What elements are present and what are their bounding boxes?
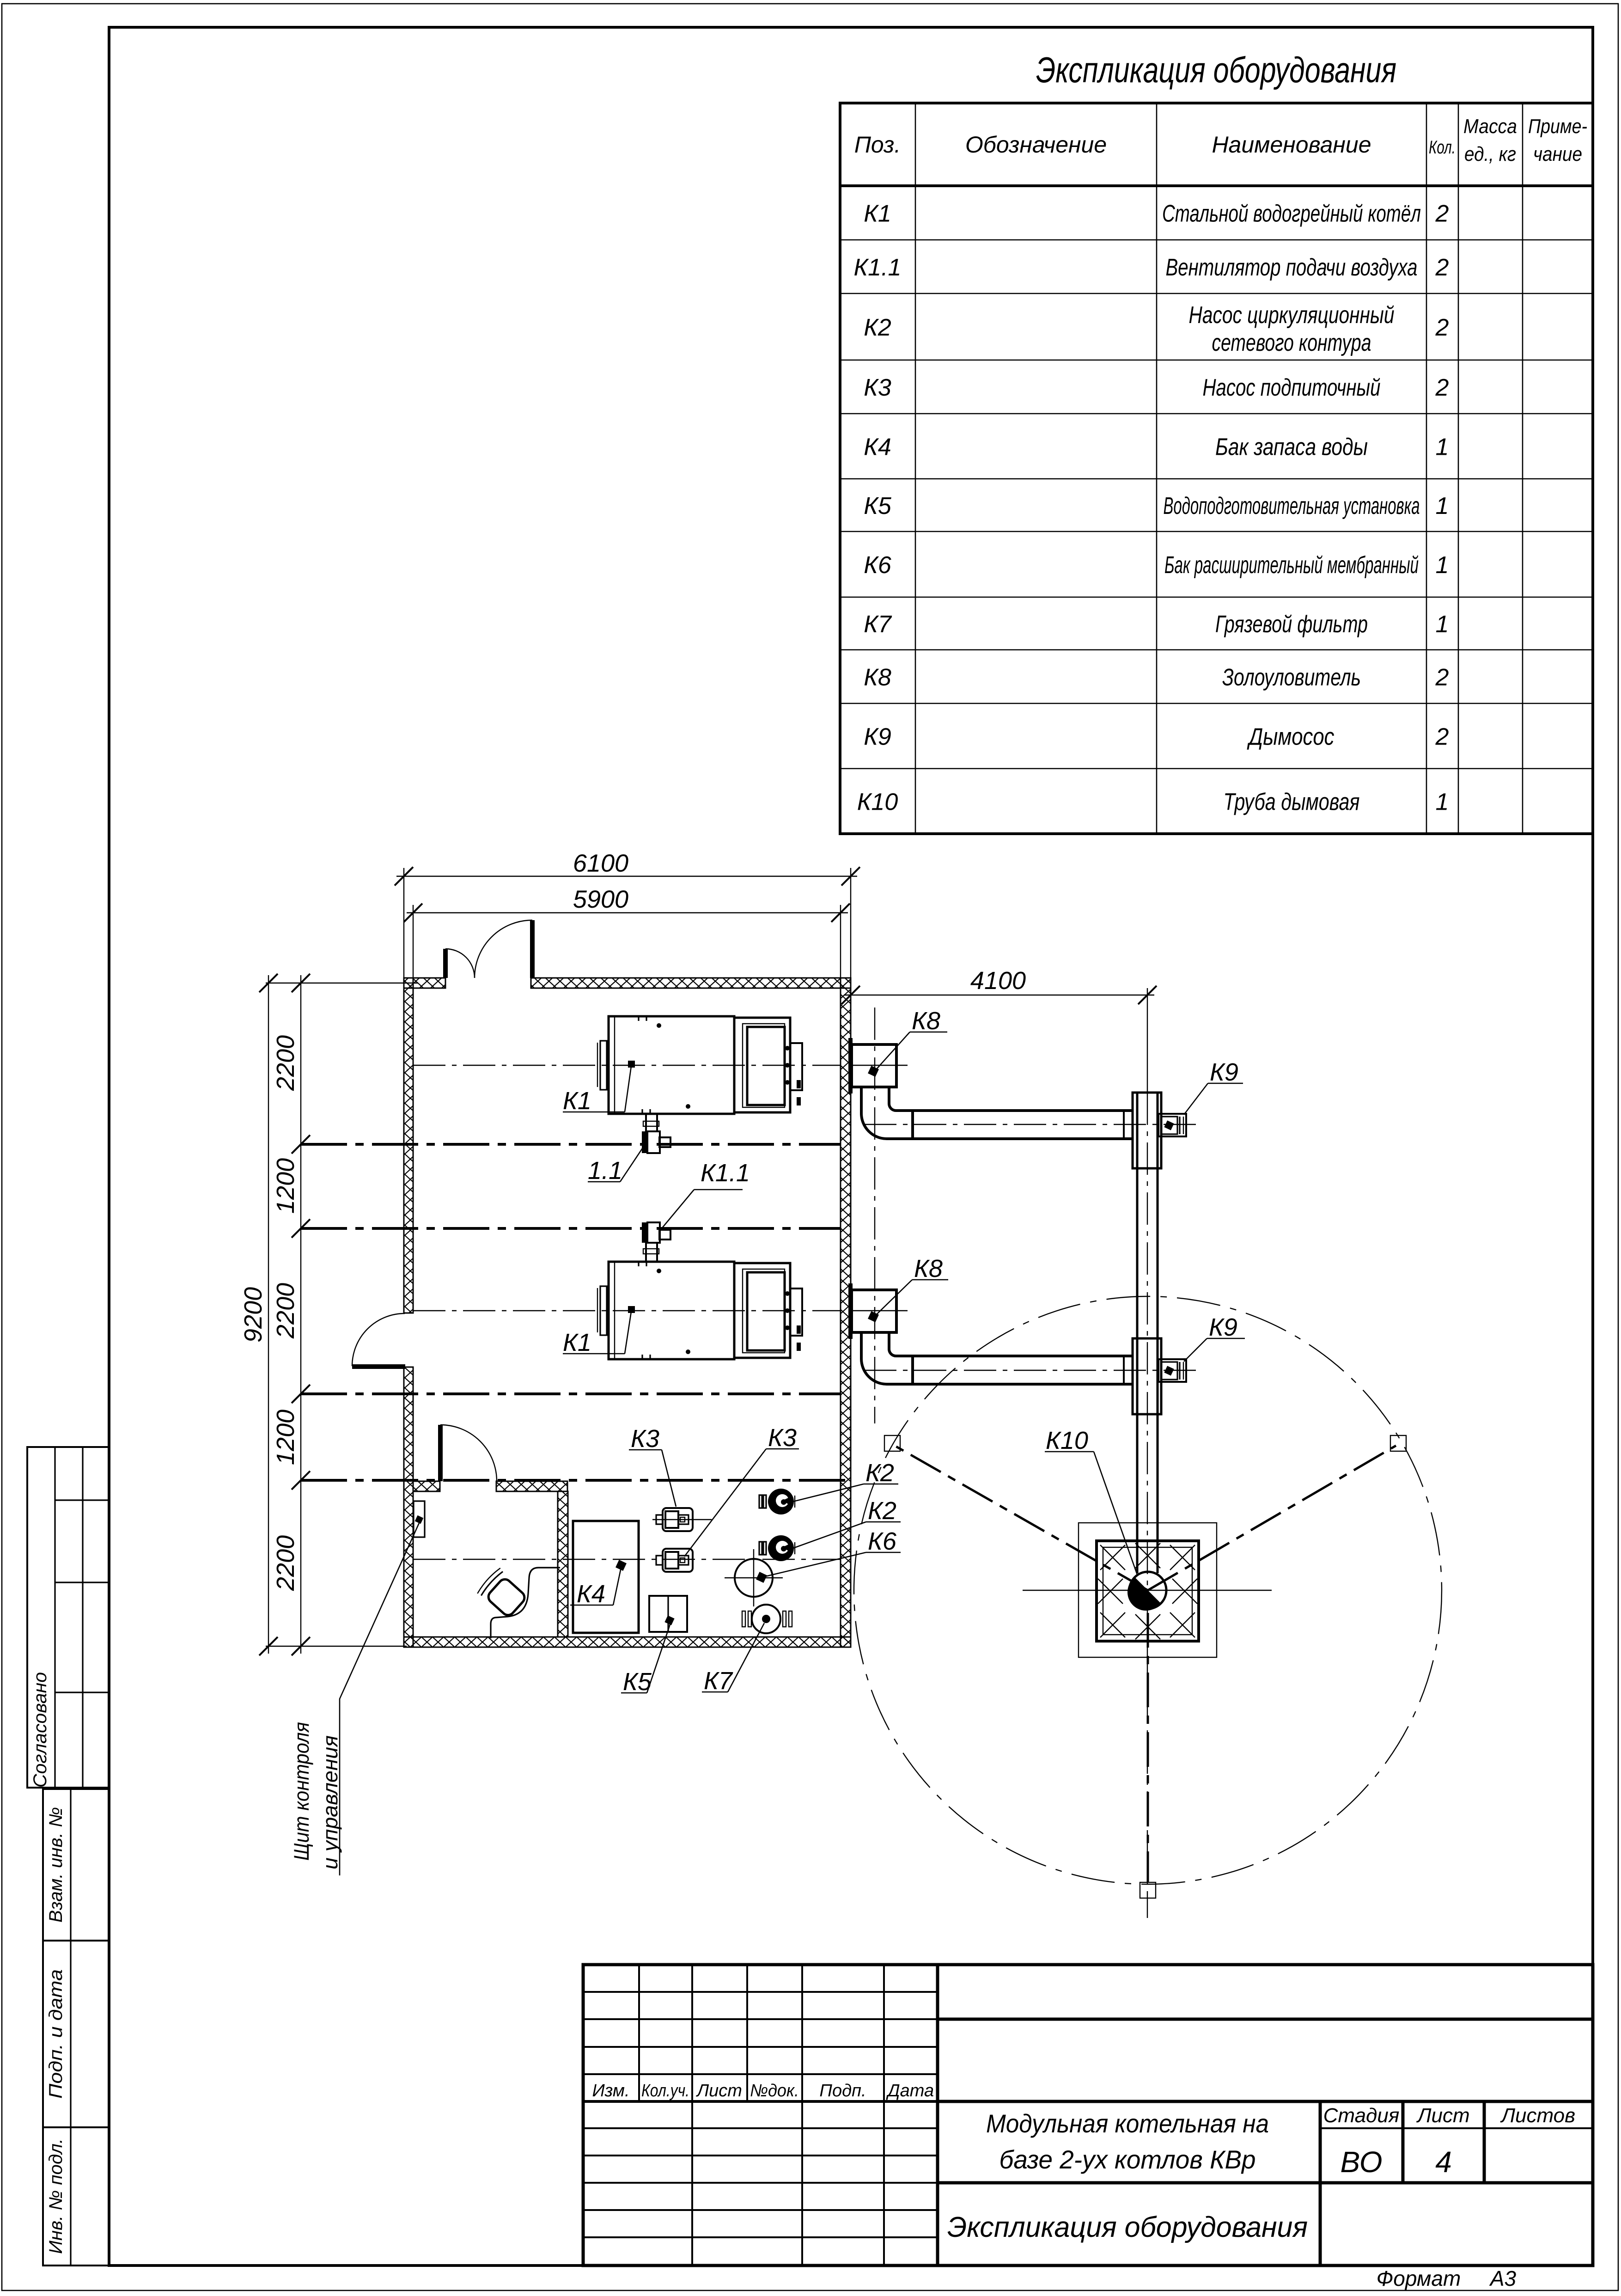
- svg-text:ед., кг: ед., кг: [1464, 143, 1516, 165]
- svg-text:Поз.: Поз.: [854, 132, 901, 158]
- svg-text:К7: К7: [864, 611, 892, 638]
- svg-text:Листов: Листов: [1500, 2104, 1575, 2127]
- svg-text:ВО: ВО: [1340, 2145, 1382, 2179]
- svg-text:Модульная котельная на: Модульная котельная на: [986, 2109, 1269, 2138]
- svg-text:2: 2: [1435, 724, 1449, 751]
- svg-text:Взам. инв. №: Взам. инв. №: [46, 1807, 66, 1923]
- svg-text:К3: К3: [768, 1424, 797, 1452]
- svg-text:К1: К1: [563, 1087, 591, 1115]
- svg-text:и управления: и управления: [318, 1735, 342, 1869]
- svg-text:Формат: Формат: [1377, 2266, 1461, 2290]
- svg-text:Бак запаса воды: Бак запаса воды: [1215, 434, 1368, 461]
- svg-text:2: 2: [1435, 374, 1449, 401]
- svg-text:К3: К3: [631, 1425, 659, 1453]
- svg-text:Экспликация оборудования: Экспликация оборудования: [947, 2211, 1308, 2243]
- svg-text:5900: 5900: [573, 885, 628, 913]
- svg-text:А3: А3: [1489, 2266, 1517, 2290]
- svg-text:Согласовано: Согласовано: [30, 1672, 50, 1788]
- svg-text:К5: К5: [864, 493, 892, 519]
- svg-text:К3: К3: [864, 374, 891, 401]
- svg-text:Подп. и дата: Подп. и дата: [46, 1969, 66, 2099]
- svg-text:2: 2: [1435, 314, 1449, 341]
- svg-text:К8: К8: [864, 664, 891, 691]
- svg-text:Экспликация оборудования: Экспликация оборудования: [1036, 49, 1396, 90]
- svg-text:К9: К9: [1210, 1058, 1238, 1086]
- svg-text:Наименование: Наименование: [1212, 132, 1371, 158]
- svg-text:2200: 2200: [272, 1035, 299, 1091]
- svg-text:9200: 9200: [239, 1287, 267, 1343]
- svg-text:Дымосос: Дымосос: [1247, 724, 1334, 751]
- svg-text:2: 2: [1435, 201, 1449, 227]
- svg-text:К9: К9: [1209, 1313, 1237, 1341]
- svg-text:1: 1: [1436, 434, 1449, 461]
- svg-text:К1.1: К1.1: [854, 254, 902, 281]
- svg-text:1200: 1200: [272, 1158, 299, 1214]
- svg-text:К8: К8: [914, 1255, 943, 1282]
- svg-text:1: 1: [1436, 552, 1449, 579]
- svg-text:Стальной водогрейный котёл: Стальной водогрейный котёл: [1162, 201, 1421, 227]
- svg-text:сетевого контура: сетевого контура: [1212, 330, 1371, 356]
- svg-text:Обозначение: Обозначение: [965, 132, 1107, 158]
- svg-text:К6: К6: [864, 552, 891, 579]
- svg-text:Подп.: Подп.: [819, 2081, 866, 2101]
- svg-text:Бак расширительный мембранный: Бак расширительный мембранный: [1164, 552, 1419, 579]
- svg-text:Водоподготовительная установка: Водоподготовительная установка: [1164, 493, 1420, 519]
- svg-text:2200: 2200: [272, 1535, 299, 1591]
- svg-text:Насос подпиточный: Насос подпиточный: [1203, 374, 1381, 401]
- svg-text:Кол.уч.: Кол.уч.: [641, 2081, 689, 2101]
- svg-text:Стадия: Стадия: [1323, 2104, 1400, 2127]
- svg-text:Щит контроля: Щит контроля: [290, 1722, 313, 1861]
- svg-text:К6: К6: [868, 1527, 897, 1555]
- svg-text:2200: 2200: [272, 1283, 299, 1339]
- svg-text:2: 2: [1435, 254, 1449, 281]
- svg-text:Грязевой фильтр: Грязевой фильтр: [1215, 611, 1368, 638]
- svg-text:К4: К4: [577, 1580, 605, 1608]
- svg-text:1: 1: [1436, 789, 1449, 816]
- svg-text:Вентилятор подачи воздуха: Вентилятор подачи воздуха: [1166, 254, 1418, 281]
- svg-text:1: 1: [1436, 611, 1449, 638]
- svg-text:Лист: Лист: [1416, 2104, 1469, 2127]
- svg-text:Лист: Лист: [695, 2081, 742, 2101]
- svg-text:К2: К2: [868, 1497, 896, 1525]
- svg-text:1200: 1200: [272, 1410, 299, 1465]
- svg-text:6100: 6100: [573, 849, 628, 877]
- svg-text:4100: 4100: [970, 967, 1026, 995]
- svg-text:1.1: 1.1: [588, 1157, 622, 1185]
- svg-text:базе 2-ух котлов КВр: базе 2-ух котлов КВр: [999, 2145, 1256, 2174]
- svg-text:К1.1: К1.1: [701, 1159, 750, 1187]
- svg-text:К10: К10: [1046, 1427, 1088, 1454]
- svg-text:К2: К2: [864, 314, 891, 341]
- svg-text:Изм.: Изм.: [592, 2081, 629, 2101]
- svg-text:Дата: Дата: [886, 2081, 934, 2101]
- svg-text:Кол.: Кол.: [1429, 137, 1456, 158]
- svg-text:Труба дымовая: Труба дымовая: [1224, 789, 1360, 816]
- svg-text:К4: К4: [864, 434, 891, 461]
- svg-text:К10: К10: [857, 789, 898, 816]
- svg-text:№док.: №док.: [750, 2081, 799, 2101]
- svg-text:Насос циркуляционный: Насос циркуляционный: [1189, 302, 1395, 329]
- svg-text:чание: чание: [1533, 143, 1582, 165]
- svg-text:Золоуловитель: Золоуловитель: [1222, 664, 1361, 691]
- svg-text:Инв. № подл.: Инв. № подл.: [46, 2138, 66, 2254]
- svg-text:2: 2: [1435, 664, 1449, 691]
- svg-text:1: 1: [1436, 493, 1449, 519]
- svg-text:К8: К8: [912, 1007, 940, 1035]
- svg-text:Приме-: Приме-: [1528, 115, 1587, 138]
- svg-text:Масса: Масса: [1463, 115, 1517, 138]
- svg-text:4: 4: [1435, 2145, 1452, 2179]
- svg-text:К9: К9: [864, 724, 891, 751]
- svg-text:К1: К1: [563, 1329, 591, 1356]
- svg-text:К2: К2: [865, 1459, 894, 1487]
- svg-text:К1: К1: [864, 201, 891, 227]
